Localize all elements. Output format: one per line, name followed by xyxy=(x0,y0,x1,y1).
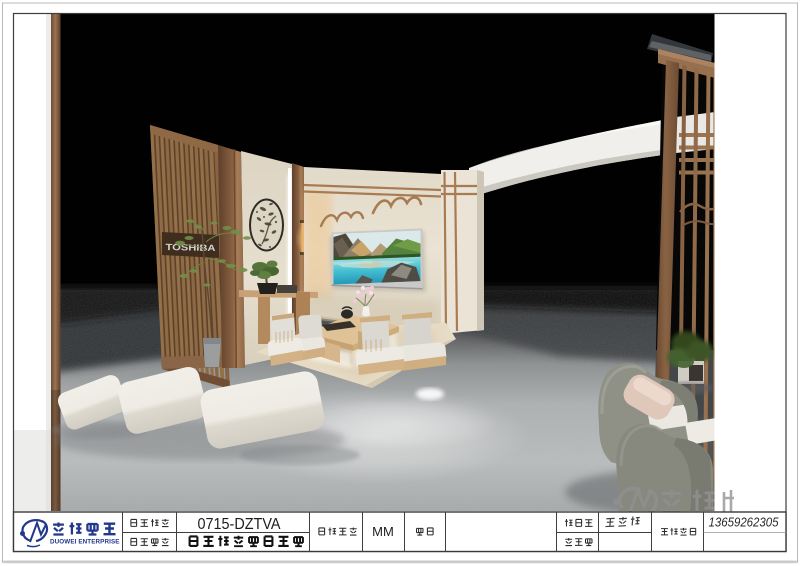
svg-text:13659262305: 13659262305 xyxy=(709,515,780,530)
svg-text:0715-DZTVA: 0715-DZTVA xyxy=(198,516,281,533)
svg-text:TOSHIBA: TOSHIBA xyxy=(165,242,216,253)
svg-text:DUOWEI ENTERPRISE: DUOWEI ENTERPRISE xyxy=(50,539,120,546)
svg-text:MM: MM xyxy=(372,524,394,539)
